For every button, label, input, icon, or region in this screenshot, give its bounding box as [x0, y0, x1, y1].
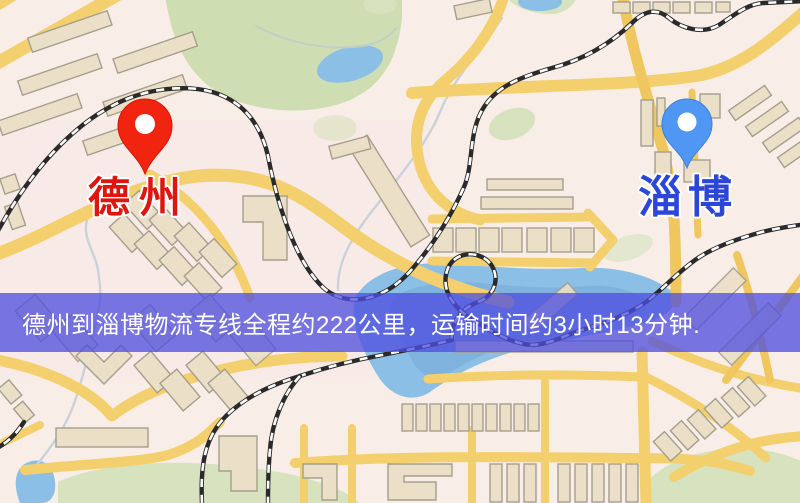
- map-canvas: [0, 0, 800, 503]
- route-info-banner: 德州到淄博物流专线全程约222公里，运输时间约3小时13分钟.: [0, 293, 800, 352]
- route-info-text: 德州到淄博物流专线全程约222公里，运输时间约3小时13分钟.: [22, 305, 700, 340]
- origin-city-label: 德州: [88, 177, 190, 219]
- destination-city-label: 淄博: [638, 176, 738, 220]
- map-image: 德州 淄博 德州到淄博物流专线全程约222公里，运输时间约3小时13分钟.: [0, 0, 800, 503]
